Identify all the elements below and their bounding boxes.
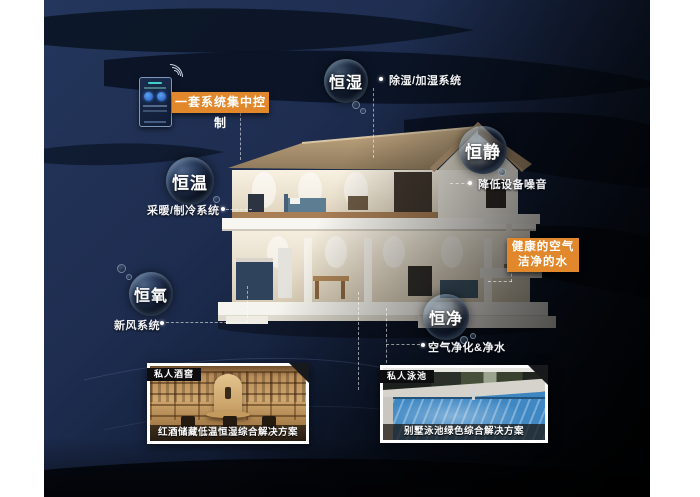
photo-corner-ribbon [528,365,548,385]
note-humidity: 除湿/加湿系统 [389,72,462,88]
phone-control-button-icon [144,92,153,101]
note-dot [160,321,164,325]
bubble-constant-quiet: 恒静 [459,126,507,174]
smart-control-phone [139,77,172,127]
bubble-constant-clean: 恒净 [423,294,469,340]
mini-bubble [117,264,126,273]
connector-humidity [373,88,374,158]
mini-bubble [360,108,366,114]
bubble-constant-temperature: 恒温 [166,157,214,205]
photo-wine-cellar: 私人酒窖 红酒储藏低温恒湿综合解决方案 [147,363,309,444]
connector-temperature [226,209,252,210]
wifi-icon [170,64,184,76]
connector-oxygen-v [247,286,248,323]
note-dot [221,207,225,211]
caption-wine-cellar: 红酒储藏低温恒湿综合解决方案 [150,425,306,441]
mini-bubble [498,168,506,176]
note-dot [379,77,383,81]
phone-stats-row [143,110,167,112]
photo-tag-pool: 私人泳池 [380,370,434,383]
callout-line1: 健康的空气 [507,240,579,255]
infographic-page: 一套系统集中控制 健康的空气 洁净的水 恒湿 恒静 恒温 恒氧 恒净 除湿/加湿… [0,0,700,497]
caption-pool: 别墅泳池绿色综合解决方案 [383,424,545,440]
note-dot [421,343,425,347]
connector-oxygen-h [166,322,247,323]
connector-callout-h [488,281,512,282]
photo-corner-ribbon [289,363,309,383]
photo-pool: 私人泳池 别墅泳池绿色综合解决方案 [380,365,548,443]
photo-tag-wine-cellar: 私人酒窖 [147,368,201,381]
healthy-air-callout: 健康的空气 洁净的水 [507,238,579,272]
note-clean: 空气净化&净水 [428,339,505,355]
phone-status-row [144,87,166,89]
phone-navbar [144,121,166,123]
phone-stats-row [143,105,167,107]
phone-control-button-icon [157,92,166,101]
connector-clean-h [386,344,420,345]
note-oxygen: 新风系统 [114,317,160,333]
bubble-constant-oxygen: 恒氧 [129,272,173,316]
mini-bubble [126,274,132,280]
note-temperature: 采暖/制冷系统 [147,202,220,218]
central-control-label: 一套系统集中控制 [172,92,269,113]
connector-clean-v [386,308,387,363]
connector-control [240,113,241,160]
mini-bubble [352,101,360,109]
connector-quiet [450,183,470,184]
connector-cellar [358,292,359,390]
bubble-constant-humidity: 恒湿 [324,59,368,103]
callout-line2: 洁净的水 [507,255,579,270]
note-quiet: 降低设备噪音 [478,176,547,192]
note-dot [468,181,472,185]
phone-titlebar [148,82,162,84]
